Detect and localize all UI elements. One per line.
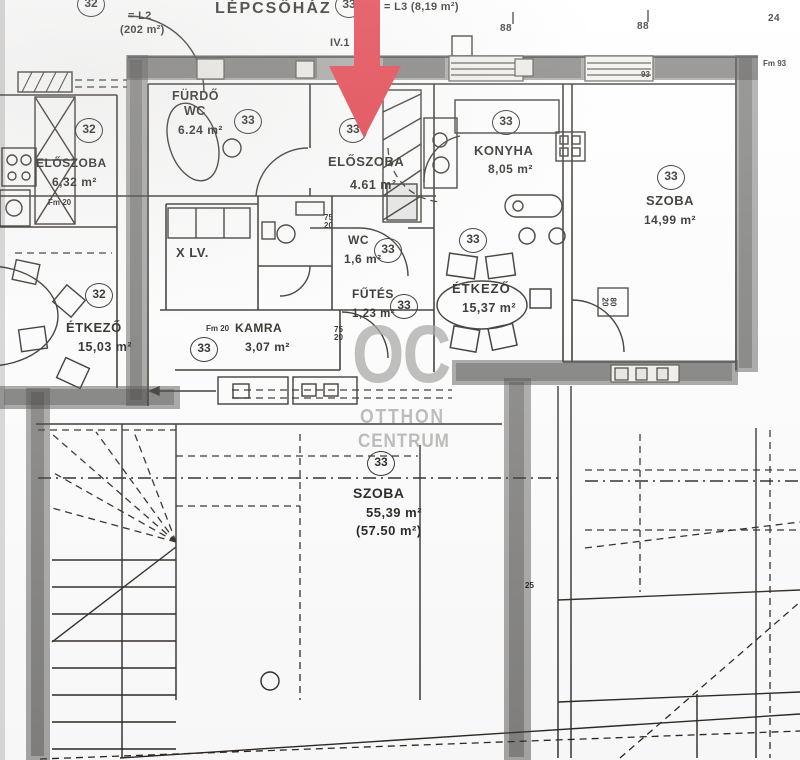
- room-etkezo33-area: 15,37 m²: [462, 302, 516, 315]
- annotation-mid-eq: = L3 (8,19 m²): [384, 2, 459, 14]
- room-etkezo33-unit: 33: [459, 228, 487, 253]
- room-etkezo32-area: 15,03 m²: [78, 341, 132, 354]
- room-szoba-attic-area: 55,39 m²: [366, 506, 422, 520]
- dim-left-note: Fm 20: [48, 199, 71, 207]
- room-futes-name: FŰTÉS: [352, 288, 394, 301]
- dim-wall-a: 93: [641, 71, 650, 79]
- room-eloszoba33-area: 4.61 m²: [350, 179, 397, 192]
- room-konyha-unit: 33: [492, 110, 520, 135]
- staircase-label: LÉPCSŐHÁZ: [215, 1, 332, 18]
- room-szoba-attic-unit: 33: [367, 451, 395, 476]
- room-furdo-unit: 33: [234, 109, 262, 134]
- level-note: IV.1: [330, 38, 350, 50]
- room-etkezo33-name: ÉTKEZŐ: [452, 282, 511, 296]
- room-wc-name: WC: [348, 234, 369, 247]
- dim-door-b: 75 20: [334, 326, 343, 342]
- dim-window-b: 88: [637, 22, 649, 33]
- room-eloszoba32-name: ELŐSZOBA: [36, 157, 107, 170]
- room-szoba-right-area: 14,99 m²: [644, 214, 696, 227]
- room-eloszoba32-unit: 32: [75, 118, 103, 143]
- room-szoba-right-name: SZOBA: [646, 194, 694, 208]
- room-szoba-attic-area-alt: (57.50 m²): [356, 524, 422, 538]
- kamra-dim-note: Fm 20: [206, 325, 229, 333]
- room-furdo-name: FÜRDŐ: [172, 90, 219, 103]
- room-kamra-name: KAMRA: [235, 322, 282, 335]
- room-etkezo32-name: ÉTKEZŐ: [66, 321, 122, 335]
- room-futes-area: 1,23 m²: [352, 308, 395, 320]
- room-kamra-area: 3,07 m²: [245, 341, 290, 354]
- room-lv-name: X LV.: [176, 246, 209, 260]
- annotation-left-area: (202 m²): [120, 25, 165, 37]
- dim-door-b-bottom: 20: [334, 334, 343, 342]
- dim-wall-b: Fm 93: [763, 60, 786, 68]
- room-wc-unit: 33: [374, 238, 402, 263]
- room-furdo-name2: WC: [184, 105, 206, 118]
- room-kamra-unit: 33: [190, 337, 218, 362]
- scan-edge-shadow: [0, 0, 5, 760]
- room-futes-unit: 33: [390, 294, 418, 319]
- floorplan-scan: OC OTTHON CENTRUM LÉPCSŐHÁZ 32 = L2 (202…: [0, 0, 800, 760]
- dim-window-a: 88: [500, 24, 512, 35]
- dim-attic: 25: [525, 582, 534, 590]
- annotation-left-eq: = L2: [128, 11, 152, 23]
- unit-circle-33-top: 33: [335, 0, 363, 18]
- room-szoba-right-unit: 33: [657, 165, 685, 190]
- room-eloszoba33-unit: 33: [339, 118, 367, 143]
- room-eloszoba32-area: 6,32 m²: [52, 176, 97, 189]
- room-szoba-attic-name: SZOBA: [353, 486, 405, 501]
- dim-door-a-bottom: 20: [324, 222, 333, 230]
- label-layer: LÉPCSŐHÁZ 32 = L2 (202 m²) 33 = L3 (8,19…: [0, 0, 800, 760]
- room-etkezo32-unit: 32: [85, 283, 113, 308]
- unit-circle-32-top: 32: [77, 0, 105, 17]
- dim-radiator-top: 80: [608, 298, 616, 307]
- room-konyha-name: KONYHA: [474, 144, 533, 158]
- room-eloszoba33-name: ELŐSZOBA: [328, 155, 404, 169]
- dim-door-a: 75 20: [324, 214, 333, 230]
- dim-radiator: 80 20: [600, 298, 616, 307]
- room-konyha-area: 8,05 m²: [488, 163, 533, 176]
- dim-window-c: 24: [768, 14, 780, 25]
- dim-radiator-bottom: 20: [600, 298, 608, 307]
- room-furdo-area: 6.24 m²: [178, 124, 223, 137]
